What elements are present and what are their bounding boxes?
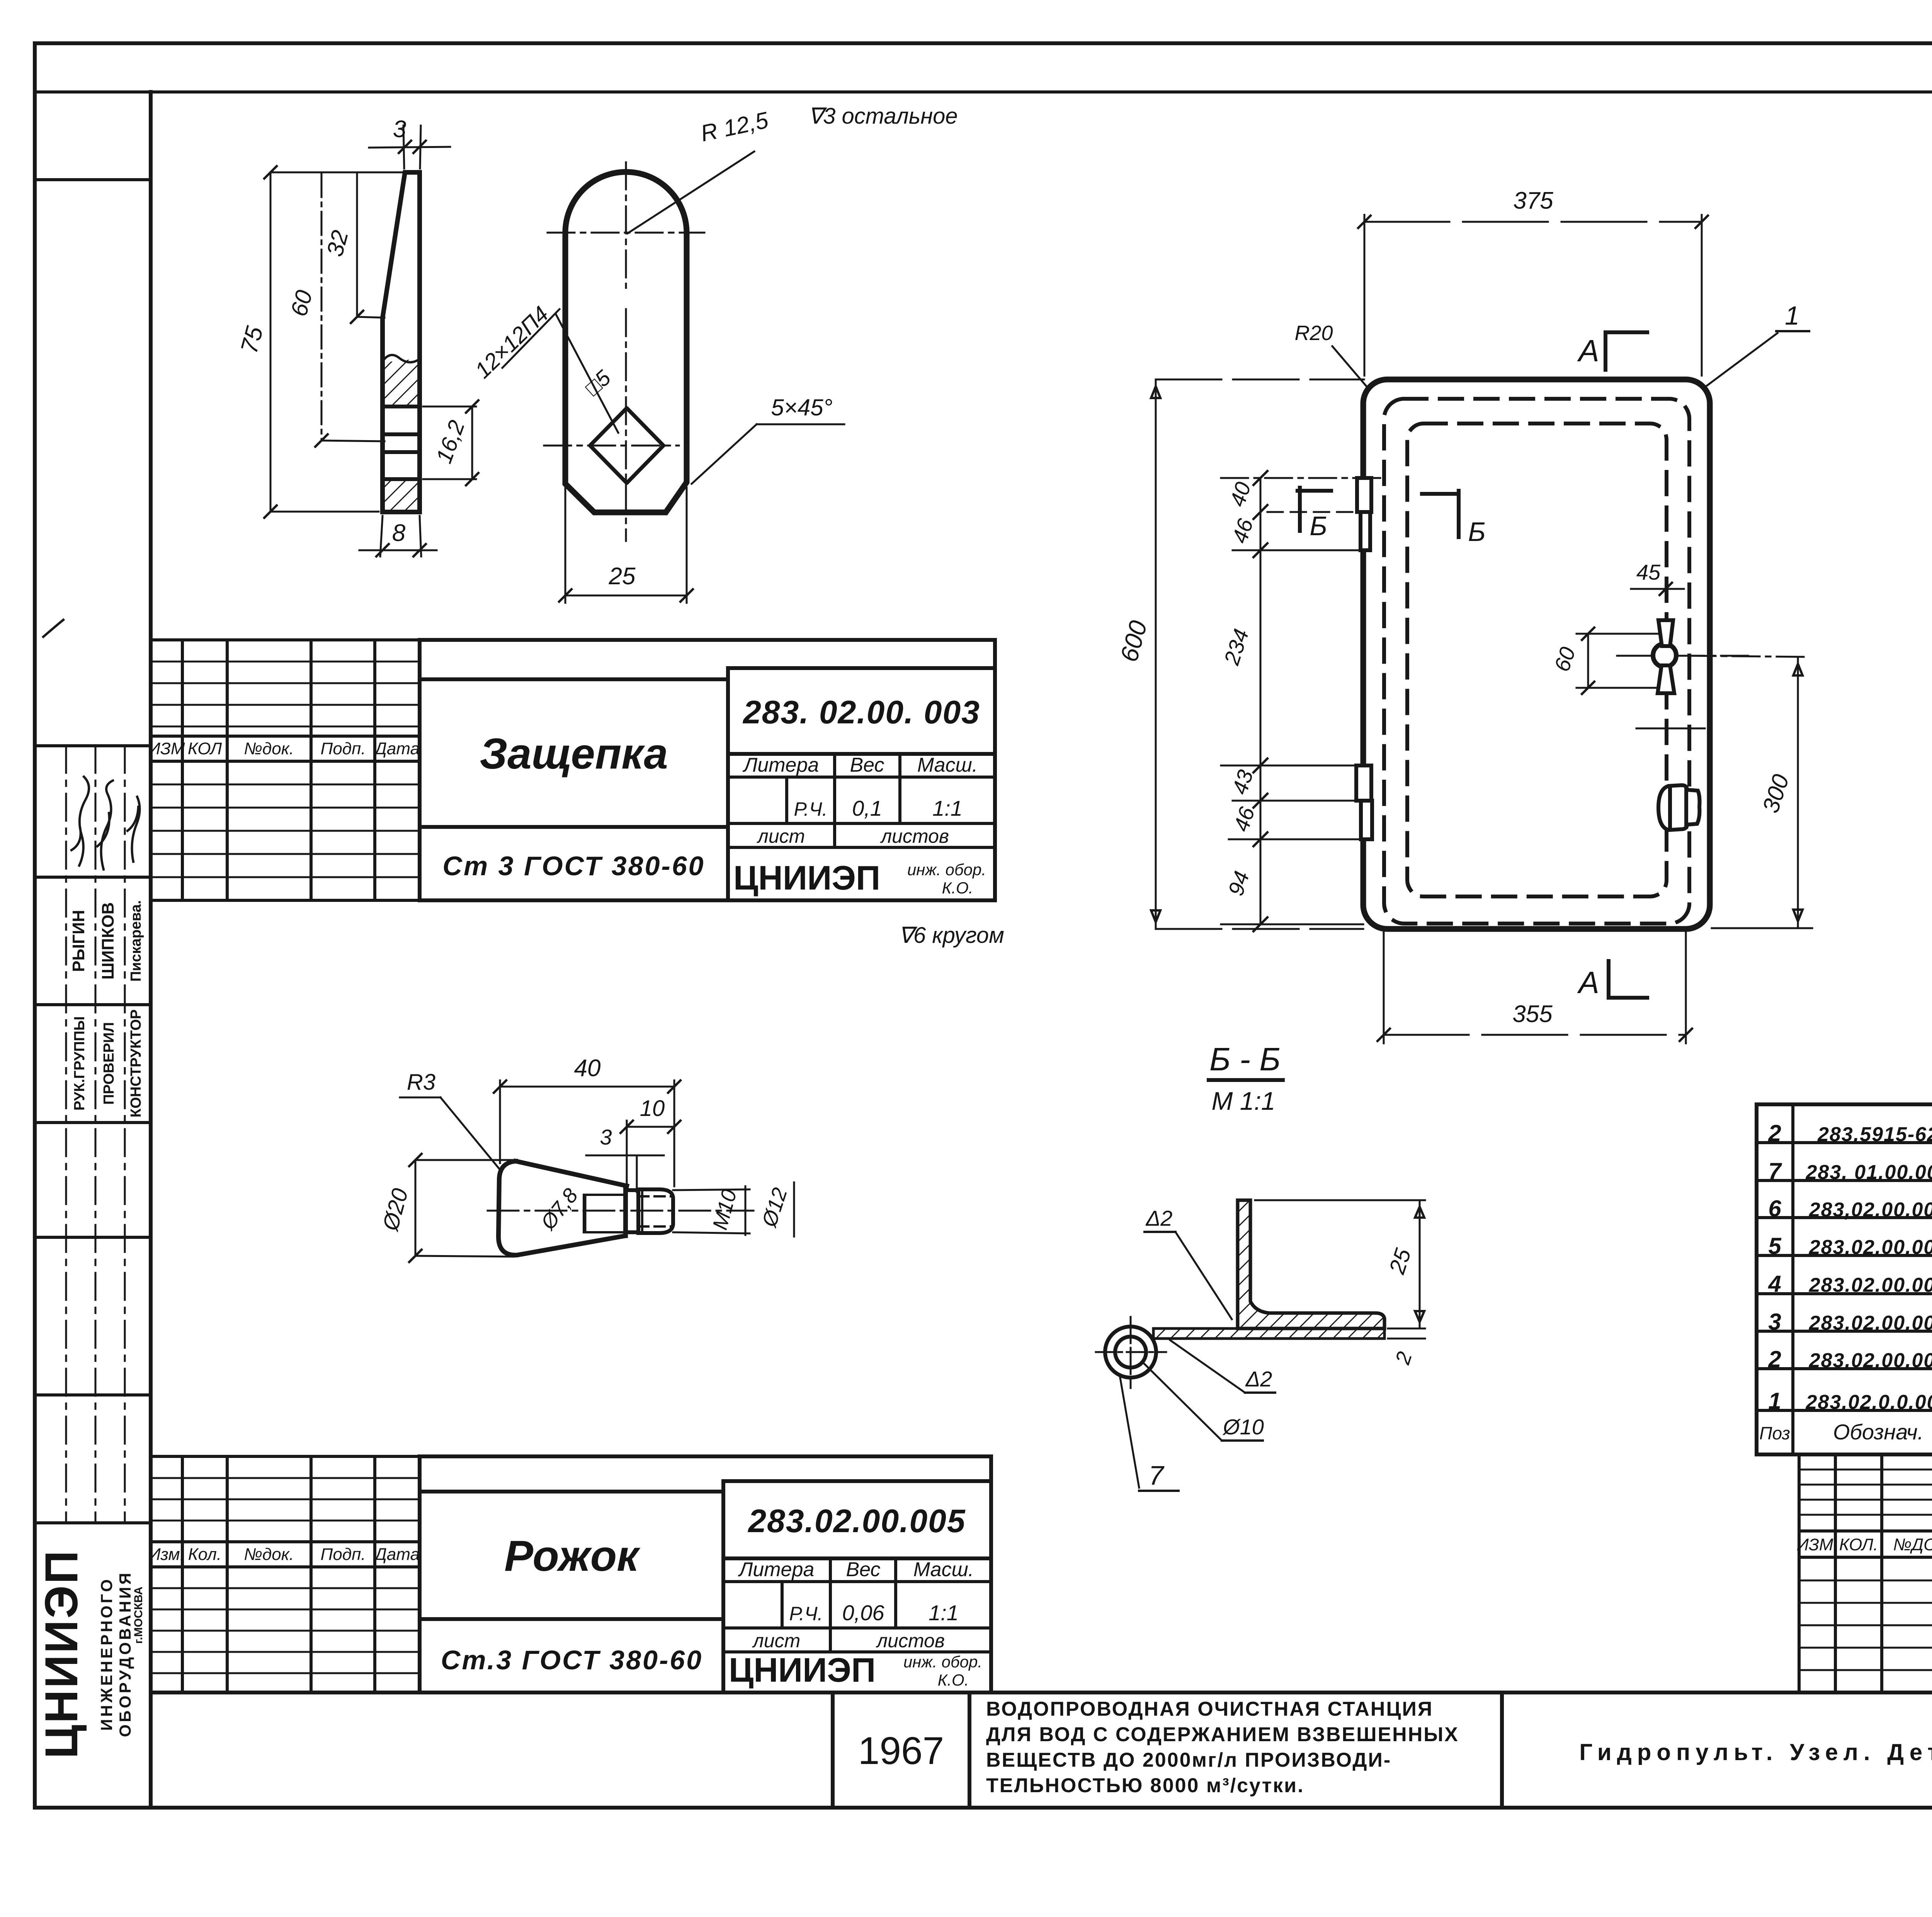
svg-text:ТЕЛЬНОСТЬЮ 8000 м³/сутки.: ТЕЛЬНОСТЬЮ 8000 м³/сутки. (986, 1774, 1304, 1797)
svg-text:Б: Б (1468, 517, 1486, 547)
svg-text:Защепка: Защепка (480, 730, 668, 778)
svg-text:Вес: Вес (846, 1558, 880, 1581)
svg-text:Подп.: Подп. (320, 739, 366, 758)
svg-text:Дата: Дата (373, 739, 420, 758)
svg-text:R20: R20 (1294, 321, 1333, 345)
svg-text:ПРОВЕРИЛ: ПРОВЕРИЛ (101, 1022, 117, 1105)
svg-text:Литера: Литера (738, 1558, 815, 1581)
svg-text:7: 7 (1768, 1158, 1782, 1184)
svg-text:5: 5 (1768, 1233, 1782, 1259)
svg-text:Пискарева.: Пискарева. (128, 900, 144, 982)
svg-text:Б: Б (1310, 511, 1327, 541)
svg-text:2: 2 (1768, 1120, 1781, 1146)
svg-text:ИЗМ: ИЗМ (148, 739, 185, 758)
svg-text:1: 1 (1785, 301, 1799, 330)
svg-text:283. 02.00. 003: 283. 02.00. 003 (742, 694, 980, 730)
svg-text:Обознач.: Обознач. (1833, 1420, 1923, 1444)
svg-text:Рожок: Рожок (504, 1532, 641, 1580)
svg-text:А: А (1577, 965, 1599, 1000)
svg-text:25: 25 (609, 563, 636, 590)
svg-text:283.02.00.002: 283.02.00.002 (1809, 1349, 1932, 1372)
svg-text:К.О.: К.О. (938, 1671, 969, 1689)
svg-text:283.02.00.004: 283.02.00.004 (1809, 1274, 1932, 1296)
svg-text:Гидропульт. Узел. Детали.: Гидропульт. Узел. Детали. (1579, 1739, 1932, 1765)
svg-text:ИЗМ.: ИЗМ. (1796, 1535, 1838, 1554)
svg-text:Поз: Поз (1759, 1423, 1790, 1443)
svg-text:4: 4 (1768, 1271, 1781, 1297)
svg-text:лист: лист (752, 1630, 801, 1652)
svg-text:ДЛЯ ВОД С СОДЕРЖАНИЕМ ВЗВЕШЕНН: ДЛЯ ВОД С СОДЕРЖАНИЕМ ВЗВЕШЕННЫХ (986, 1723, 1459, 1746)
svg-text:7: 7 (1149, 1460, 1165, 1490)
svg-text:283. 01.00.005: 283. 01.00.005 (1806, 1161, 1932, 1184)
svg-text:Ст 3 ГОСТ 380-60: Ст 3 ГОСТ 380-60 (442, 851, 705, 881)
svg-text:инж. обор.: инж. обор. (903, 1653, 982, 1671)
svg-text:Подп.: Подп. (320, 1545, 366, 1564)
svg-text:8: 8 (392, 520, 406, 546)
svg-text:1: 1 (1768, 1388, 1781, 1414)
svg-text:∇6 кругом: ∇6 кругом (898, 923, 1004, 948)
svg-text:№ДОК.: №ДОК. (1893, 1535, 1932, 1554)
svg-text:3: 3 (1768, 1309, 1781, 1335)
svg-text:283.5915-62: 283.5915-62 (1817, 1123, 1932, 1146)
svg-text:ЦНИИЭП: ЦНИИЭП (36, 1549, 87, 1759)
svg-text:М 1:1: М 1:1 (1211, 1087, 1275, 1115)
svg-text:Δ2: Δ2 (1245, 1367, 1272, 1391)
svg-text:10: 10 (640, 1096, 665, 1121)
svg-text:∇3 остальное: ∇3 остальное (808, 104, 957, 129)
svg-text:КОНСТРУКТОР: КОНСТРУКТОР (128, 1009, 144, 1118)
svg-text:листов: листов (880, 825, 949, 847)
svg-text:Δ2: Δ2 (1145, 1206, 1173, 1230)
svg-text:R3: R3 (407, 1070, 435, 1095)
svg-text:Кол.: Кол. (188, 1545, 221, 1564)
svg-text:К.О.: К.О. (942, 879, 973, 897)
svg-text:0,06: 0,06 (842, 1601, 885, 1625)
svg-text:№док.: №док. (244, 1545, 294, 1564)
svg-text:ИНЖЕНЕРНОГО: ИНЖЕНЕРНОГО (97, 1577, 116, 1731)
svg-text:Вес: Вес (850, 754, 884, 776)
svg-text:5×45°: 5×45° (771, 395, 832, 420)
svg-text:ВЕЩЕСТВ ДО 2000мг/л ПРОИЗВОДИ-: ВЕЩЕСТВ ДО 2000мг/л ПРОИЗВОДИ- (986, 1749, 1391, 1771)
svg-text:ЦНИИЭП: ЦНИИЭП (729, 1651, 876, 1689)
svg-text:Р.Ч.: Р.Ч. (789, 1603, 823, 1624)
svg-text:1967: 1967 (858, 1729, 944, 1772)
svg-text:инж. обор.: инж. обор. (907, 861, 986, 879)
svg-text:Масш.: Масш. (913, 1558, 974, 1581)
svg-text:3: 3 (600, 1125, 612, 1149)
svg-text:0,1: 0,1 (852, 796, 882, 820)
svg-text:1:1: 1:1 (932, 796, 963, 820)
svg-text:283.02.00.003: 283.02.00.003 (1809, 1312, 1932, 1334)
svg-text:Ст.3 ГОСТ 380-60: Ст.3 ГОСТ 380-60 (441, 1645, 703, 1675)
svg-text:Б - Б: Б - Б (1209, 1041, 1281, 1077)
svg-text:КОЛ: КОЛ (188, 739, 222, 758)
svg-text:Изм.: Изм. (148, 1545, 185, 1564)
svg-text:ЦНИИЭП: ЦНИИЭП (733, 859, 880, 897)
svg-text:1:1: 1:1 (929, 1601, 959, 1625)
svg-text:№док.: №док. (244, 739, 294, 758)
svg-text:РУК.ГРУППЫ: РУК.ГРУППЫ (71, 1016, 88, 1111)
svg-text:45: 45 (1636, 560, 1661, 584)
svg-text:375: 375 (1513, 187, 1553, 214)
svg-text:ВОДОПРОВОДНАЯ ОЧИСТНАЯ СТАНЦИЯ: ВОДОПРОВОДНАЯ ОЧИСТНАЯ СТАНЦИЯ (986, 1698, 1433, 1720)
svg-text:г.МОСКВА: г.МОСКВА (132, 1587, 145, 1644)
svg-text:355: 355 (1512, 1001, 1553, 1027)
svg-text:Р.Ч.: Р.Ч. (794, 798, 827, 820)
svg-text:283.02.0.0.001: 283.02.0.0.001 (1806, 1391, 1932, 1414)
svg-text:ОБОРУДОВАНИЯ: ОБОРУДОВАНИЯ (116, 1571, 134, 1737)
svg-text:40: 40 (574, 1055, 601, 1082)
svg-text:лист: лист (757, 825, 805, 847)
svg-text:2: 2 (1768, 1346, 1781, 1372)
svg-text:6: 6 (1768, 1196, 1781, 1221)
svg-text:А: А (1577, 333, 1599, 368)
svg-text:283.02.00.005: 283.02.00.005 (1809, 1236, 1932, 1259)
svg-text:Ø10: Ø10 (1222, 1415, 1264, 1439)
svg-text:Литера: Литера (743, 754, 819, 776)
svg-text:КОЛ.: КОЛ. (1839, 1535, 1878, 1554)
svg-text:283.02.00.005: 283.02.00.005 (747, 1503, 966, 1539)
svg-text:3: 3 (393, 116, 406, 143)
svg-text:Масш.: Масш. (917, 754, 978, 776)
svg-text:РЫГИН: РЫГИН (69, 910, 88, 972)
svg-text:ШИПКОВ: ШИПКОВ (99, 902, 117, 980)
svg-text:листов: листов (876, 1630, 945, 1652)
svg-text:Дата: Дата (373, 1545, 420, 1564)
svg-text:283,02.00.006: 283,02.00.006 (1809, 1199, 1932, 1221)
